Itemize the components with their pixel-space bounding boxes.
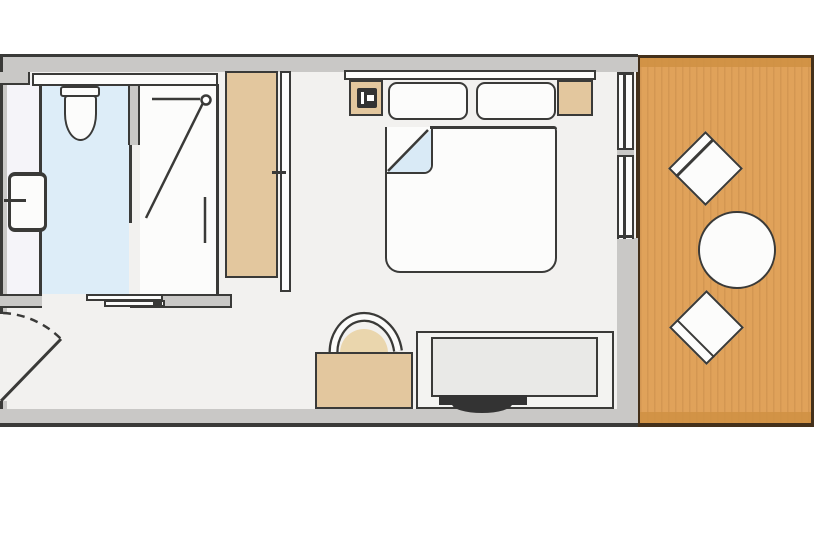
pillow-right: [476, 82, 556, 120]
wardrobe-door: [280, 71, 291, 292]
telephone-icon: [357, 88, 377, 108]
faucet-icon: [4, 199, 26, 202]
pillow-left: [388, 82, 468, 120]
bed-sheet-triangle: [385, 127, 431, 172]
window-meeting-stile: [617, 148, 634, 157]
nightstand-right: [557, 80, 593, 116]
deck-edge-band-top: [640, 58, 811, 67]
wardrobe-door-handle: [272, 171, 286, 174]
wall-right-lower: [617, 238, 638, 409]
duvet-top-edge: [430, 126, 557, 129]
headboard: [344, 70, 596, 80]
console-top: [431, 337, 598, 397]
telephone-body: [367, 95, 374, 101]
floor-plan: [0, 0, 820, 560]
shower-glass-left: [129, 145, 132, 223]
wardrobe: [225, 71, 278, 278]
armchair-seat: [315, 352, 413, 409]
window-cap-bottom: [617, 235, 634, 238]
window-cap-top: [617, 72, 634, 75]
washbasin: [8, 172, 47, 232]
entry-door-opening: [0, 314, 7, 401]
shower-partition-wall: [128, 84, 140, 145]
telephone-handset: [361, 92, 364, 104]
round-table: [698, 211, 776, 289]
shower-floor: [140, 80, 217, 294]
bathroom-wall-bottom-left: [0, 294, 42, 308]
wall-shaft-top-left: [0, 72, 30, 85]
sliding-door-handle: [153, 299, 162, 306]
bathroom-bedroom-partition: [216, 84, 219, 295]
bathroom-counter-shelf: [32, 73, 218, 86]
folded-duvet-corner: [385, 127, 433, 174]
deck-edge-band-bottom: [640, 412, 811, 423]
wall-bottom: [0, 409, 638, 427]
